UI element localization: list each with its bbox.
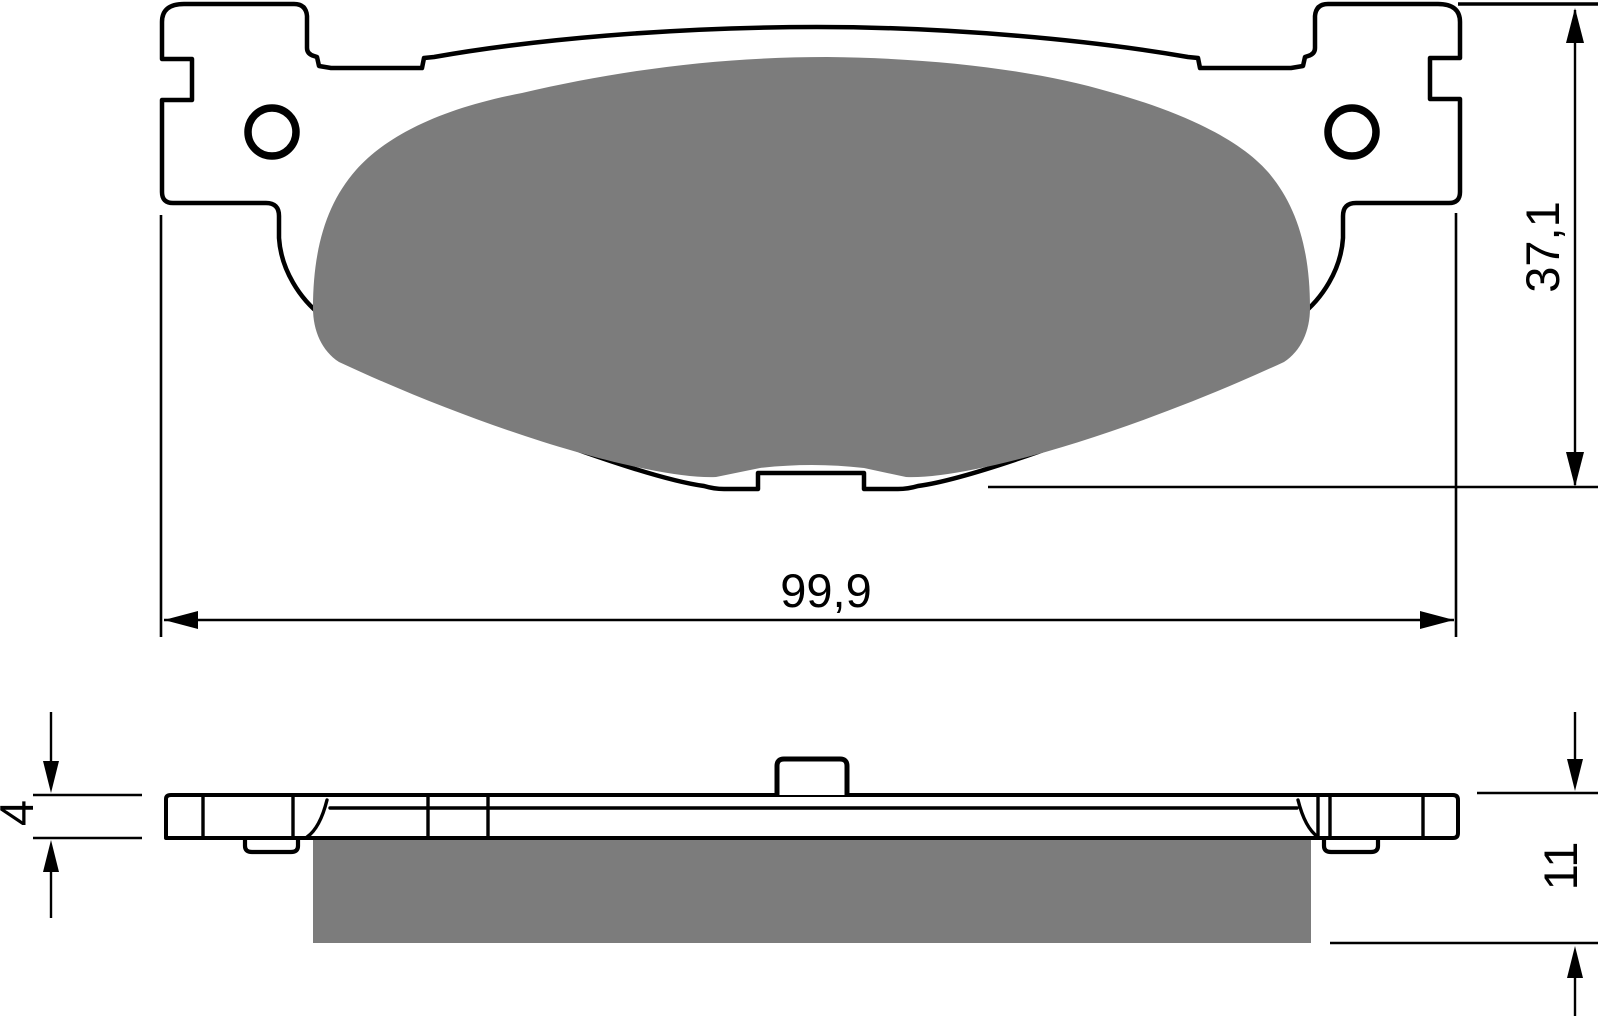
plate-thickness-arrowhead-top — [43, 761, 59, 793]
plate-thickness-arrowhead-bottom — [43, 840, 59, 872]
total-thickness-arrowhead-top — [1567, 759, 1583, 791]
drawing-canvas: 99,9 37,1 — [0, 0, 1600, 1018]
friction-material-top-view — [313, 57, 1310, 477]
height-arrowhead-bottom — [1566, 452, 1584, 487]
mounting-hole-right — [1328, 108, 1376, 156]
top-view — [162, 4, 1460, 489]
total-thickness-label: 11 — [1534, 842, 1587, 891]
height-arrowhead-top — [1566, 8, 1584, 43]
width-arrowhead-right — [1420, 611, 1454, 629]
center-tab — [777, 759, 847, 795]
plate-thickness-label: 4 — [0, 800, 43, 826]
side-plate-body — [166, 795, 1458, 838]
width-arrowhead-left — [164, 611, 198, 629]
bottom-tab-left — [245, 838, 298, 852]
width-dimension-label: 99,9 — [780, 564, 871, 617]
technical-drawing: 99,9 37,1 — [0, 0, 1600, 1018]
bottom-tab-right — [1324, 838, 1378, 852]
mounting-hole-left — [248, 108, 296, 156]
total-thickness-arrowhead-bottom — [1567, 946, 1583, 978]
plate-thickness-dimension: 4 — [0, 712, 142, 918]
side-view — [166, 759, 1458, 943]
total-thickness-dimension: 11 — [1330, 712, 1598, 1016]
height-dimension-label: 37,1 — [1516, 201, 1569, 292]
friction-material-side-view — [313, 840, 1311, 943]
